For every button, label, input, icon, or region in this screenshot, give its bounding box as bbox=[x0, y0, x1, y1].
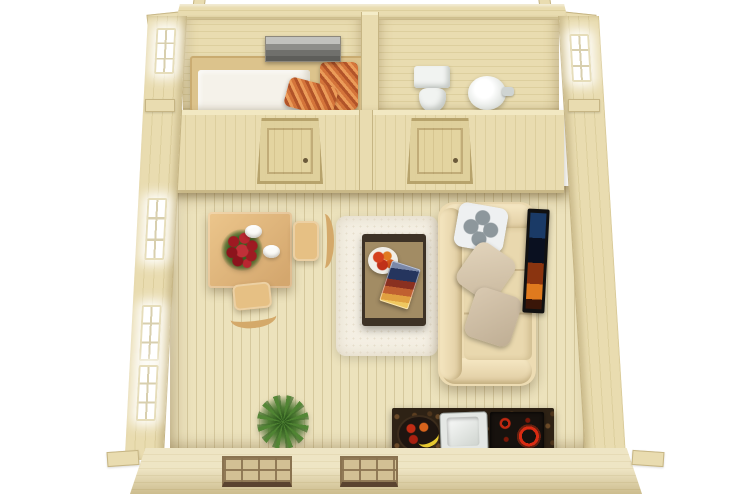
basin-faucet bbox=[502, 87, 514, 96]
chair-backrest bbox=[315, 214, 334, 268]
bedroom-door-handle bbox=[303, 158, 308, 163]
bathroom bbox=[377, 18, 559, 116]
living-window-2 bbox=[139, 305, 162, 361]
sink-basin bbox=[446, 416, 479, 446]
cup bbox=[245, 225, 262, 238]
cooktop bbox=[490, 412, 544, 450]
log-end-left-mid bbox=[145, 99, 175, 112]
partition-wall-end bbox=[359, 110, 373, 190]
front-wall bbox=[130, 448, 642, 494]
seascape-picture bbox=[265, 36, 341, 62]
front-window-1 bbox=[222, 456, 292, 487]
bedroom-window bbox=[154, 28, 176, 74]
bathroom-door bbox=[407, 118, 473, 184]
interior-wall bbox=[166, 110, 564, 193]
living-window-3 bbox=[136, 365, 159, 421]
tv-screen bbox=[525, 213, 546, 310]
potted-plant bbox=[257, 395, 309, 449]
bathroom-window bbox=[569, 34, 592, 82]
banana bbox=[414, 425, 442, 451]
partition-wall bbox=[361, 12, 379, 116]
kitchen-sink bbox=[439, 411, 488, 453]
log-end-right-mid bbox=[568, 99, 600, 112]
toilet-tank bbox=[414, 66, 450, 88]
fruit-bowl bbox=[397, 415, 441, 453]
dining-chair-bottom bbox=[227, 281, 281, 328]
washbasin bbox=[468, 76, 506, 110]
kitchen-counter bbox=[392, 408, 554, 452]
log-end-bottom-right bbox=[632, 450, 665, 467]
floorplan-render bbox=[0, 0, 749, 500]
front-window-2 bbox=[340, 456, 398, 487]
living-window-1 bbox=[144, 198, 167, 260]
cup bbox=[263, 245, 280, 258]
log-end-bottom-left bbox=[107, 450, 140, 467]
bedroom-door bbox=[257, 118, 323, 184]
bed bbox=[190, 56, 364, 112]
bathroom-door-handle bbox=[453, 158, 458, 163]
dining-chair-right bbox=[293, 212, 329, 270]
